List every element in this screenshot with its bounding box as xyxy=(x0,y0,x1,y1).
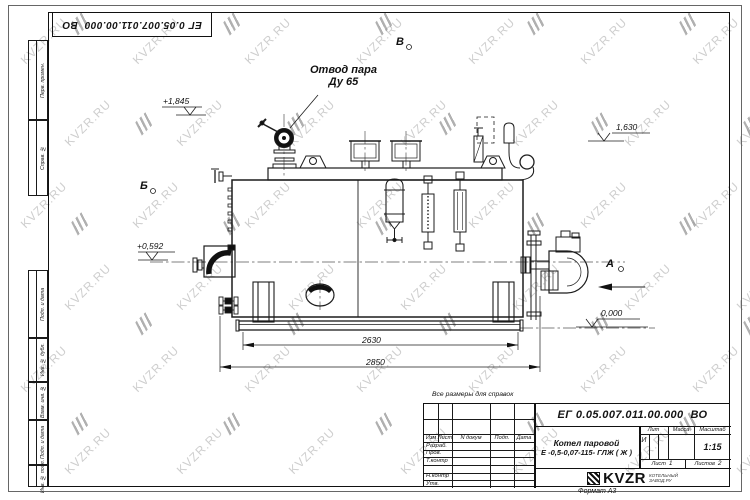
col-list: Лист xyxy=(438,434,452,442)
phantom-outline xyxy=(477,117,494,143)
top-platform xyxy=(268,168,502,180)
probe-cylinder xyxy=(504,123,514,143)
kvzr-logo-subtext: КОТЕЛЬНЫЙ ЗАВОД.РУ xyxy=(649,473,678,483)
sheets-cell: Листов 2 xyxy=(685,459,731,468)
scale-value: 1:15 xyxy=(694,434,731,459)
kvzr-logo-text: KVZR xyxy=(603,470,646,487)
bottom-nozzles xyxy=(219,297,238,314)
dimension-2850: 2850 xyxy=(366,357,385,367)
col-podp: Подп. xyxy=(490,434,514,442)
view-bb-mark xyxy=(151,189,156,194)
elevation-burner: +0,592 xyxy=(137,241,163,251)
elevation-platform: 1,630 xyxy=(616,122,637,132)
dimension-2630: 2630 xyxy=(362,335,381,345)
boiler-body xyxy=(232,180,523,317)
sign-row-prov: Пров. xyxy=(424,450,454,458)
support-leg-left xyxy=(253,282,274,322)
skid-frame xyxy=(236,320,523,331)
title-block: ЕГ 0.05.007.011.00.000 ВО Котел паровой … xyxy=(423,403,730,487)
title-designation: ЕГ 0.05.007.011.00.000 ВО xyxy=(534,404,731,426)
view-a-mark xyxy=(619,267,624,272)
sign-row-tkontr: Т.контр xyxy=(424,457,454,465)
drawing-sheet: KVZR.RUKVZR.RUKVZR.RUKVZR.RUKVZR.RUKVZR.… xyxy=(0,0,750,500)
col-data: Дата xyxy=(514,434,534,442)
format-label: Формат А3 xyxy=(578,488,616,495)
steam-outlet-callout: Отвод пара Ду 65 xyxy=(310,64,377,88)
downcomer-pipe xyxy=(527,231,541,320)
product-name: Котел паровой Е -0,5-0,07-115- ГЛЖ ( Ж ) xyxy=(534,426,639,468)
support-leg-right xyxy=(493,282,514,322)
kvzr-logo-icon xyxy=(587,472,600,485)
mass-header: Масса xyxy=(668,426,694,434)
lit-header: Лит xyxy=(639,426,668,434)
sign-row-razrab: Разраб. xyxy=(424,442,454,450)
flex-hose xyxy=(509,152,520,168)
company-cell: KVZR КОТЕЛЬНЫЙ ЗАВОД.РУ xyxy=(534,468,731,488)
elevation-marks xyxy=(138,107,650,327)
sheet-cell: Лист 1 xyxy=(639,459,685,468)
water-column xyxy=(384,179,405,243)
sign-row-nkontr: Н.контр xyxy=(424,473,454,481)
col-ndokum: N докум xyxy=(452,434,490,442)
level-gauge-2 xyxy=(454,172,466,251)
view-label-b: Б xyxy=(140,180,148,192)
elevation-valve: +1,845 xyxy=(163,96,189,106)
view-a-arrow xyxy=(598,284,645,291)
drain-valve-top-left xyxy=(211,169,232,183)
level-sensor xyxy=(474,128,483,162)
reference-note: Все размеры для справок xyxy=(432,391,513,398)
view-label-a: А xyxy=(606,258,614,270)
scale-header: Масштаб xyxy=(694,426,731,434)
level-gauge-1 xyxy=(422,176,434,249)
col-izm: Изм xyxy=(424,434,438,442)
view-b-mark xyxy=(407,45,412,50)
burner xyxy=(193,245,235,277)
view-label-v: В xyxy=(396,36,404,48)
steam-valve xyxy=(258,119,296,168)
callout-leader xyxy=(290,95,318,128)
sign-row-utv: Утв. xyxy=(424,480,454,488)
sign-row-blank xyxy=(424,465,454,473)
elevation-base: 0,000 xyxy=(601,308,622,318)
lit-value: И xyxy=(639,434,649,446)
